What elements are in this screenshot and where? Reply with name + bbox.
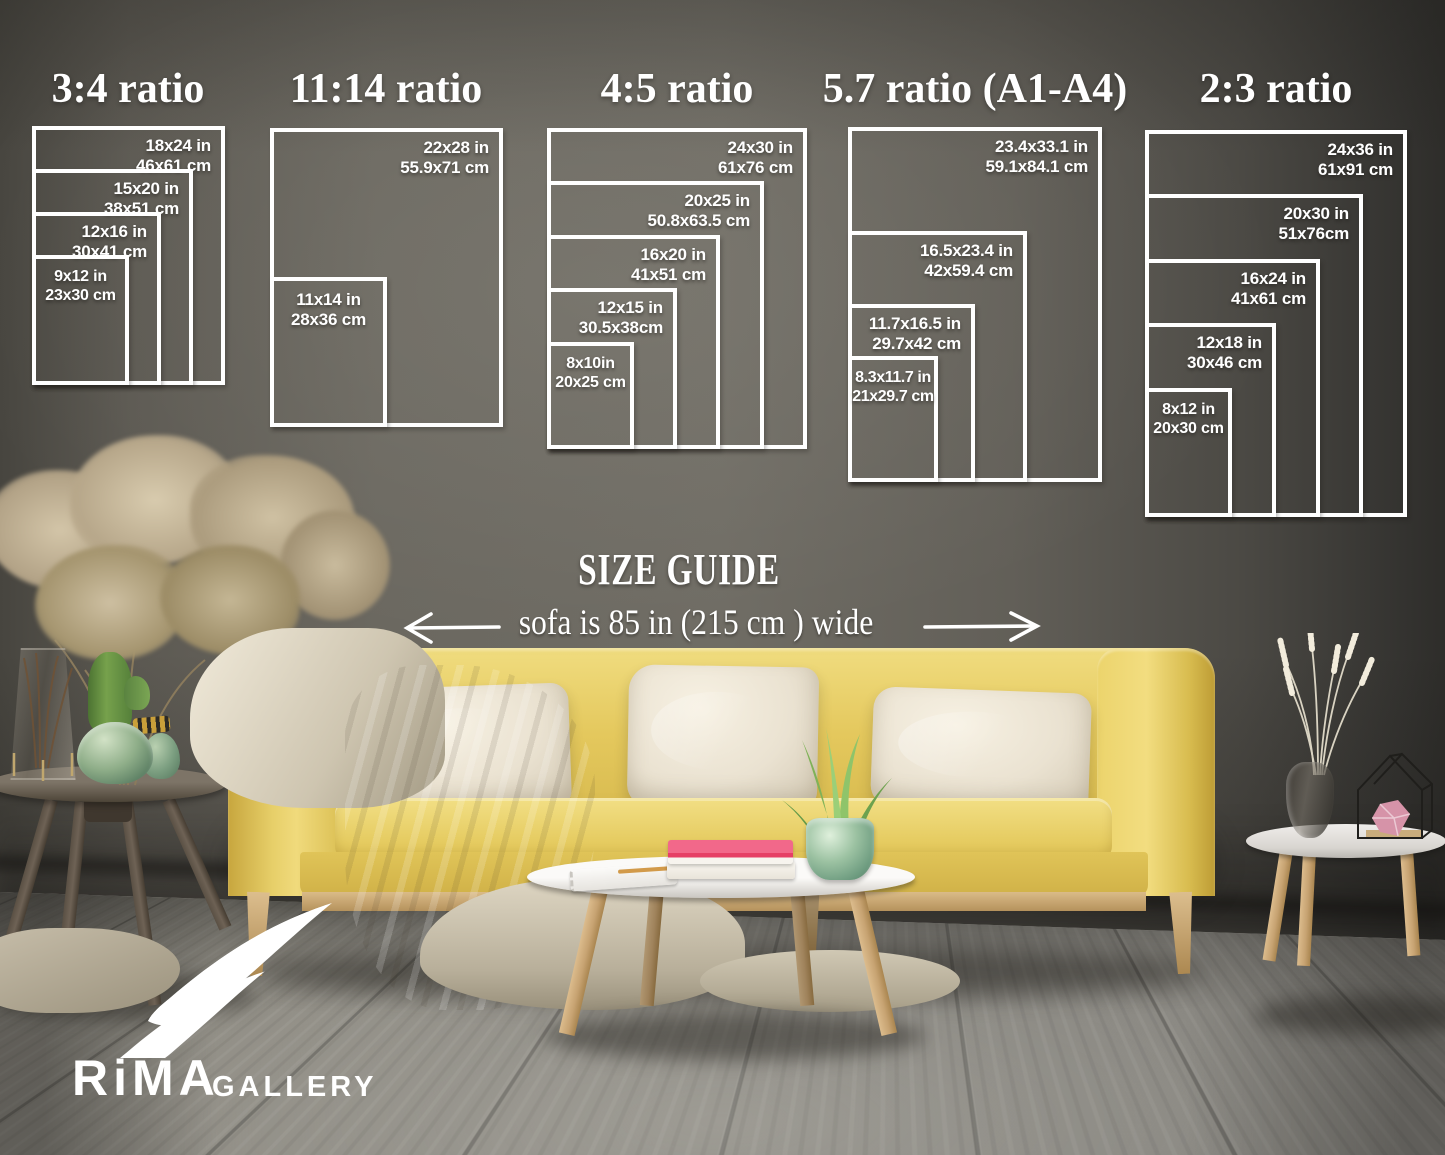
cactus-arm [124, 676, 150, 710]
size-label-in: 24x36 in [1318, 140, 1393, 160]
size-label-in: 8.3x11.7 in [852, 369, 934, 388]
size-guide-poster: 3:4 ratio 18x24 in46x61 cm 15x20 in38x51… [0, 0, 1445, 1155]
plant-vase [806, 818, 874, 880]
size-label-in: 8x12 in [1149, 401, 1228, 420]
ratio-diagram-3-4: 18x24 in46x61 cm 15x20 in38x51 cm 12x16 … [32, 126, 225, 385]
size-label-in: 12x15 in [579, 298, 663, 318]
size-label-in: 23.4x33.1 in [985, 137, 1088, 157]
stool-glass-vase [1286, 762, 1334, 838]
ratio-diagram-2-3: 24x36 in61x91 cm 20x30 in51x76cm 16x24 i… [1145, 130, 1407, 517]
size-label-cm: 20x30 cm [1149, 420, 1228, 439]
sofa-width-arrows [395, 607, 1045, 649]
logo-swoosh-icon [70, 893, 400, 1058]
logo-brand-text: RiMA [72, 1053, 220, 1103]
size-label-cm: 30.5x38cm [579, 318, 663, 338]
size-label-cm: 21x29.7 cm [852, 388, 934, 407]
rima-gallery-logo: RiMA GALLERY [70, 893, 410, 1118]
size-label-cm: 30x46 cm [1187, 353, 1262, 373]
size-label-cm: 28x36 cm [274, 310, 383, 330]
size-frame: 8x12 in20x30 cm [1145, 388, 1232, 517]
size-label-in: 20x30 in [1279, 204, 1349, 224]
green-cactus-pot [77, 722, 153, 784]
wire-house-frame [1350, 740, 1440, 844]
size-label-in: 16x24 in [1231, 269, 1306, 289]
size-label-in: 12x18 in [1187, 333, 1262, 353]
throw-blanket-pool [700, 950, 960, 1012]
book-pink [668, 840, 793, 864]
size-label-in: 8x10in [551, 355, 630, 374]
size-label-cm: 61x91 cm [1318, 160, 1393, 180]
size-label-in: 15x20 in [104, 179, 179, 199]
size-frame: 11x14 in28x36 cm [270, 277, 387, 427]
ratio-diagram-5-7: 23.4x33.1 in59.1x84.1 cm 16.5x23.4 in42x… [848, 127, 1102, 482]
size-label-in: 9x12 in [36, 268, 125, 287]
size-label-in: 24x30 in [718, 138, 793, 158]
size-frame: 8.3x11.7 in21x29.7 cm [848, 356, 938, 482]
size-frame: 9x12 in23x30 cm [32, 255, 129, 385]
size-label-in: 20x25 in [647, 191, 750, 211]
size-label-cm: 61x76 cm [718, 158, 793, 178]
size-label-in: 11x14 in [274, 290, 383, 310]
size-label-in: 18x24 in [136, 136, 211, 156]
size-frame: 8x10in20x25 cm [547, 342, 634, 449]
size-guide-heading: SIZE GUIDE [527, 544, 831, 597]
size-label-cm: 42x59.4 cm [920, 261, 1013, 281]
coffee-table-shadow [545, 1012, 925, 1060]
right-arrow-icon [925, 613, 1037, 640]
ratio-diagram-11-14: 22x28 in55.9x71 cm 11x14 in28x36 cm [270, 128, 503, 427]
left-arrow-icon [407, 614, 499, 642]
size-label-cm: 41x51 cm [631, 265, 706, 285]
vase-twigs [6, 648, 80, 783]
size-label-cm: 20x25 cm [551, 374, 630, 393]
size-label-cm: 51x76cm [1279, 224, 1349, 244]
size-label-in: 12x16 in [72, 222, 147, 242]
size-label-cm: 50.8x63.5 cm [647, 211, 750, 231]
ratio-diagram-4-5: 24x30 in61x76 cm 20x25 in50.8x63.5 cm 16… [547, 128, 807, 449]
size-label-in: 11.7x16.5 in [869, 314, 961, 334]
size-label-cm: 59.1x84.1 cm [985, 157, 1088, 177]
sofa-pillow-right [870, 686, 1092, 814]
size-label-in: 22x28 in [400, 138, 489, 158]
size-label-in: 16x20 in [631, 245, 706, 265]
size-label-in: 16.5x23.4 in [920, 241, 1013, 261]
size-label-cm: 55.9x71 cm [400, 158, 489, 178]
ratio-title-2-3: 2:3 ratio [1066, 64, 1445, 114]
size-label-cm: 29.7x42 cm [869, 334, 961, 354]
logo-suffix-text: GALLERY [212, 1073, 377, 1102]
size-label-cm: 41x61 cm [1231, 289, 1306, 309]
size-label-cm: 23x30 cm [36, 287, 125, 306]
